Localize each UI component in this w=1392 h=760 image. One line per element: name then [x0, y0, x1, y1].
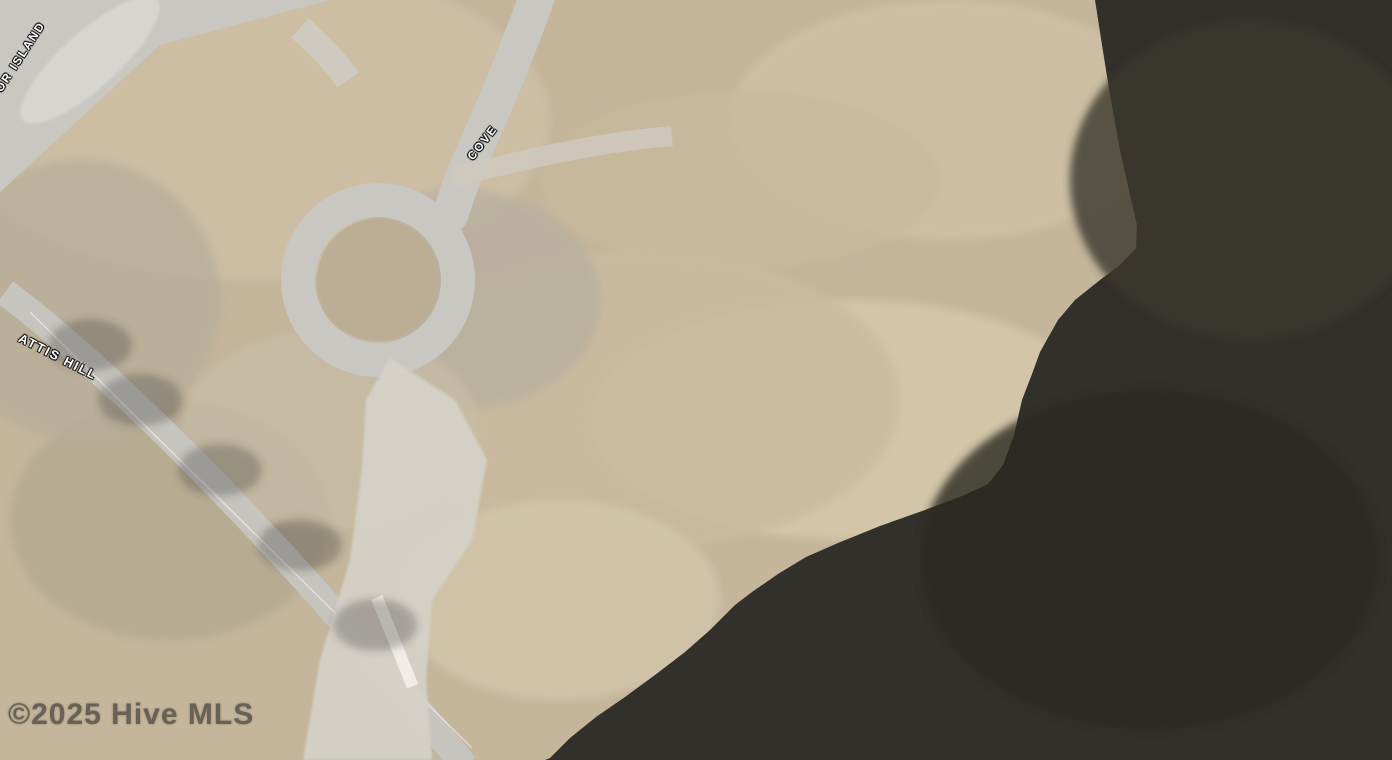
aerial-map: OR ISLAND COVE ATTIS HILL ©2025 Hive MLS: [0, 0, 1392, 760]
aerial-imagery: [0, 0, 1392, 760]
